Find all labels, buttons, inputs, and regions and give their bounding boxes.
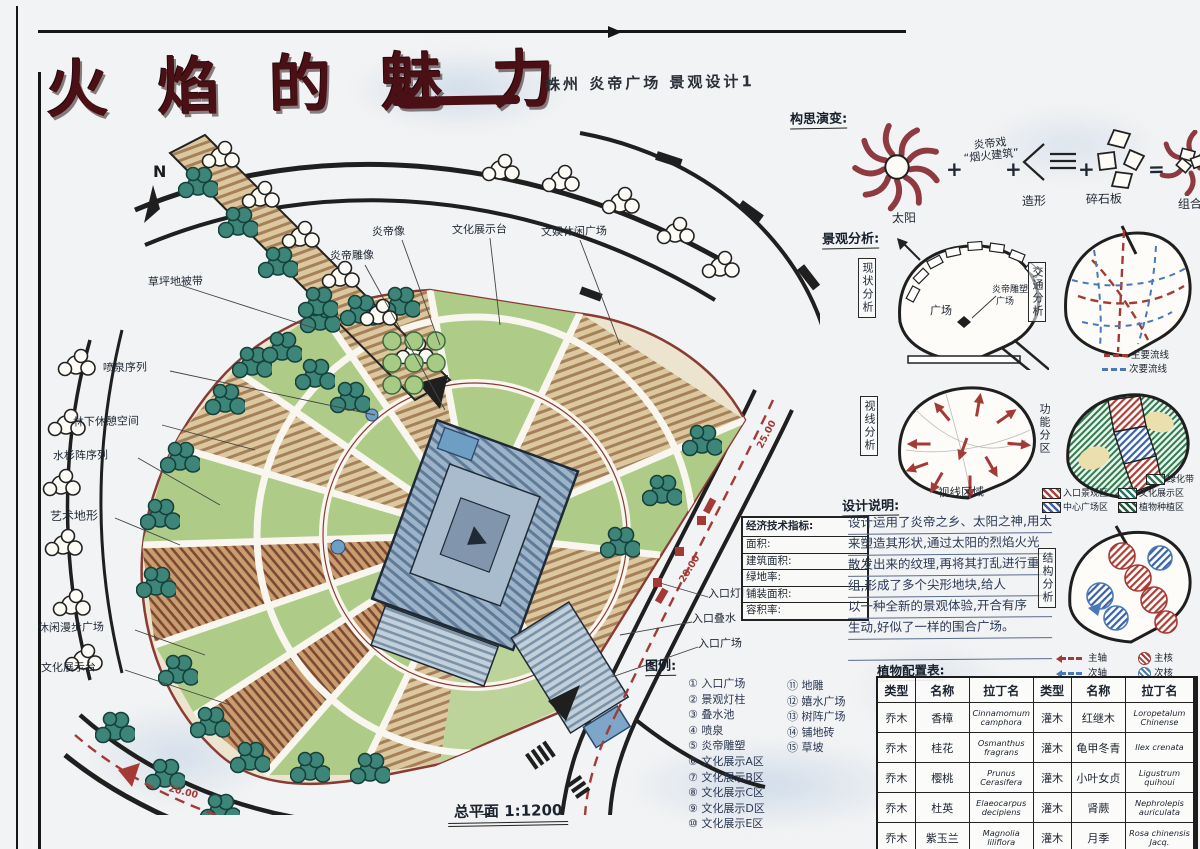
plant-table-row: 乔木 香樟 Cinnamomum camphora 灌木 红继木 Loropet…	[877, 703, 1196, 733]
sun-icon	[852, 122, 942, 212]
secondary-flow-swatch	[1102, 368, 1126, 371]
col-header: 拉丁名	[1125, 677, 1195, 703]
note-line: 来塑造其形状,通过太阳的烈焰火光	[848, 533, 1052, 556]
col-header: 名称	[1071, 677, 1125, 703]
legend-item: ⑤ 炎帝雕塑	[688, 738, 765, 754]
plan-label: 文娱休闲广场	[541, 225, 607, 238]
legend-item: ⑭ 铺地砖	[787, 725, 846, 741]
legend-item: ⑩ 文化展示E区	[688, 816, 765, 832]
legend-item: ① 入口广场	[688, 676, 765, 692]
frame-top-arrow	[608, 26, 628, 38]
legend-item: ⑨ 文化展示D区	[688, 801, 765, 817]
sun-label: 太阳	[892, 212, 916, 226]
page-subtitle: 株州 炎帝广场 景观设计1	[545, 70, 755, 95]
plaza-zone-label: 中心广场区	[1063, 503, 1108, 513]
plant-table-row: 乔木 杜英 Elaeocarpus decipiens 灌木 肾蕨 Nephro…	[877, 793, 1196, 823]
zoning-legend-item: 文化展示区	[1118, 486, 1184, 499]
note-line: 以一种全新的景观体验,开合有序	[848, 596, 1052, 619]
traffic-analysis-label: 交通分析	[1028, 262, 1046, 322]
table-cell: Loropetalum Chinense	[1125, 703, 1195, 733]
plant-table-row: 乔木 紫玉兰 Magnolia liliflora 灌木 月季 Rosa chi…	[877, 823, 1196, 849]
legend-item: ⑪ 地雕	[787, 678, 846, 694]
analysis-heading: 景观分析:	[822, 228, 880, 250]
table-cell: 灌木	[1033, 763, 1071, 793]
plan-label: 文化展示台	[452, 224, 507, 237]
legend-heading: 图例:	[645, 655, 677, 677]
plant-table: 类型 名称 拉丁名 类型 名称 拉丁名 乔木 香樟 Cinnamomum cam…	[876, 676, 1198, 849]
table-cell: 龟甲冬青	[1071, 733, 1125, 763]
green-belt-label: 绿化带	[1167, 475, 1194, 485]
planting-zone-swatch	[1118, 502, 1137, 513]
concept-heading: 构思演变:	[790, 108, 848, 130]
traffic-legend-item: 主要流线	[1104, 347, 1169, 361]
legend-col1: ① 入口广场 ② 景观灯柱 ③ 叠水池 ④ 喷泉 ⑤ 炎帝雕塑 ⑥ 文化展示A区…	[688, 676, 765, 832]
svg-text:N: N	[153, 162, 166, 181]
svg-text:炎帝雕塑: 炎帝雕塑	[992, 283, 1028, 295]
table-cell: 小叶女贞	[1071, 763, 1125, 793]
note-line-blank	[848, 638, 1052, 661]
main-core-swatch	[1138, 652, 1151, 665]
table-cell: Elaeocarpus decipiens	[969, 793, 1033, 823]
plan-caption: 总平面 1:1200	[448, 799, 569, 827]
table-cell: 灌木	[1033, 733, 1071, 763]
main-flow-label: 主要流线	[1131, 350, 1169, 361]
note-line: 散发出来的纹理,再将其打乱进行重	[848, 554, 1052, 577]
legend-item: ⑥ 文化展示A区	[688, 754, 765, 770]
note-line: 设计运用了炎帝之乡、太阳之神,用太阳	[848, 512, 1052, 535]
slabs-icon	[1090, 128, 1148, 192]
plus-sign: +	[946, 158, 963, 180]
current-analysis-diagram: 广场 炎帝雕塑 广场	[884, 238, 1049, 370]
table-cell: 香樟	[915, 703, 969, 733]
fan-shape-icon	[1018, 140, 1082, 184]
entry-zone-label: 入口景观区	[1063, 489, 1108, 499]
table-cell: Osmanthus fragrans	[969, 733, 1033, 763]
current-analysis-label: 现状分析	[858, 258, 876, 318]
plan-label: 入口广场	[698, 638, 742, 651]
main-flow-swatch	[1104, 354, 1128, 357]
plan-label: 文化展示台	[41, 662, 96, 675]
traffic-legend-item: 次要流线	[1102, 361, 1167, 375]
table-cell: 乔木	[877, 793, 915, 823]
table-cell: 灌木	[1033, 703, 1071, 733]
table-cell: 月季	[1071, 823, 1125, 849]
zoning-legend-item: 中心广场区	[1042, 500, 1108, 513]
table-cell: Rosa chinensis Jacq.	[1125, 823, 1195, 849]
table-cell: Nephrolepis auriculata	[1125, 793, 1195, 823]
table-cell: Prunus Cerasifera	[969, 763, 1033, 793]
plan-label: 炎帝像	[372, 226, 405, 239]
zoning-label: 功能分区	[1036, 400, 1052, 458]
table-cell: 灌木	[1033, 793, 1071, 823]
legend-item: ④ 喷泉	[688, 723, 765, 739]
outer-buildings	[579, 151, 820, 301]
legend-item: ② 景观灯柱	[688, 692, 765, 708]
table-cell: Ilex crenata	[1125, 733, 1195, 763]
legend-col2: ⑪ 地雕 ⑫ 嬉水广场 ⑬ 树阵广场 ⑭ 铺地砖 ⑮ 草坡	[787, 678, 846, 756]
combination-label: 组合	[1178, 198, 1200, 212]
structure-analysis-label: 结构分析	[1038, 548, 1056, 608]
table-cell: Ligustrum quihoui	[1125, 763, 1195, 793]
table-cell: 乔木	[877, 703, 915, 733]
plant-table-row: 乔木 樱桃 Prunus Cerasifera 灌木 小叶女贞 Ligustru…	[877, 763, 1196, 793]
table-cell: 乔木	[877, 823, 915, 849]
table-cell: 桂花	[915, 733, 969, 763]
legend-item: ③ 叠水池	[688, 707, 765, 723]
table-cell: 乔木	[877, 733, 915, 763]
design-notes: 设计运用了炎帝之乡、太阳之神,用太阳 来塑造其形状,通过太阳的烈焰火光 散发出来…	[848, 513, 1052, 660]
svg-text:广场: 广场	[930, 303, 952, 317]
table-cell: Cinnamomum camphora	[969, 703, 1033, 733]
culture-zone-label: 文化展示区	[1139, 489, 1184, 499]
fan-shape-label: 造形	[1022, 195, 1046, 209]
legend-item: ⑫ 嬉水广场	[787, 694, 846, 710]
sight-analysis-diagram	[886, 380, 1042, 502]
culture-zone-swatch	[1118, 488, 1137, 499]
structure-legend-item: 主轴	[1060, 650, 1107, 664]
zebra-crossing	[525, 741, 590, 799]
planting-zone-label: 植物种植区	[1139, 503, 1184, 513]
zoning-legend-item: 绿化带	[1146, 472, 1194, 485]
table-cell: 樱桃	[915, 763, 969, 793]
plan-label: 水杉阵序列	[53, 450, 108, 463]
secondary-flow-label: 次要流线	[1129, 364, 1167, 375]
col-header: 拉丁名	[969, 677, 1033, 703]
structure-legend-item: 主核	[1138, 650, 1173, 665]
zoning-legend-item: 入口景观区	[1042, 486, 1108, 499]
plan-label: 炎帝雕像	[330, 250, 374, 263]
legend-item: ⑦ 文化展示B区	[688, 770, 765, 786]
secondary-axis-swatch	[1060, 672, 1082, 675]
slabs-label: 碎石板	[1086, 193, 1122, 207]
table-cell: 乔木	[877, 763, 915, 793]
note-line: 组,形成了多个尖形地块,给人	[848, 575, 1052, 598]
presentation-board: { "title": {"main": "火 焰 的 魅 力", "subtit…	[0, 0, 1200, 849]
structure-analysis-diagram	[1058, 524, 1196, 650]
legend-item: ⑮ 草坡	[787, 740, 846, 756]
col-header: 名称	[915, 677, 969, 703]
green-belt-swatch	[1146, 474, 1165, 485]
plan-label: 艺术地形	[50, 510, 98, 524]
plan-label: 喷泉序列	[103, 362, 147, 375]
frame-left-outer	[16, 6, 18, 849]
sight-caption: 视线区域	[938, 486, 984, 499]
plan-label: 入口叠水	[692, 613, 736, 626]
plant-table-row: 乔木 桂花 Osmanthus fragrans 灌木 龟甲冬青 Ilex cr…	[877, 733, 1196, 763]
table-cell: 紫玉兰	[915, 823, 969, 849]
sight-analysis-label: 视线分析	[860, 396, 878, 456]
svg-text:广场: 广场	[996, 295, 1014, 307]
main-axis-label: 主轴	[1088, 653, 1107, 664]
north-arrow: N	[144, 162, 166, 223]
main-axis-swatch	[1060, 657, 1082, 660]
legend-item: ⑧ 文化展示C区	[688, 785, 765, 801]
col-header: 类型	[877, 677, 915, 703]
plan-label: 林下休憩空间	[73, 415, 139, 428]
entry-zone-swatch	[1042, 488, 1061, 499]
svg-text:28.00: 28.00	[677, 553, 702, 585]
zoning-legend-item: 植物种植区	[1118, 500, 1184, 513]
combination-icon	[1158, 130, 1200, 196]
main-core-label: 主核	[1154, 653, 1173, 664]
plan-label: 草坪地被带	[148, 276, 203, 289]
table-cell: 杜英	[915, 793, 969, 823]
note-line: 生动,好似了一样的围合广场。	[848, 617, 1052, 640]
plant-table-header-row: 类型 名称 拉丁名 类型 名称 拉丁名	[877, 677, 1196, 703]
table-cell: Magnolia liliflora	[969, 823, 1033, 849]
fountain	[331, 540, 345, 554]
table-cell: 红继木	[1071, 703, 1125, 733]
col-header: 类型	[1033, 677, 1071, 703]
table-cell: 灌木	[1033, 823, 1071, 849]
table-cell: 肾蕨	[1071, 793, 1125, 823]
plan-label: 休闲漫步广场	[38, 621, 104, 634]
legend-item: ⑬ 树阵广场	[787, 709, 846, 725]
